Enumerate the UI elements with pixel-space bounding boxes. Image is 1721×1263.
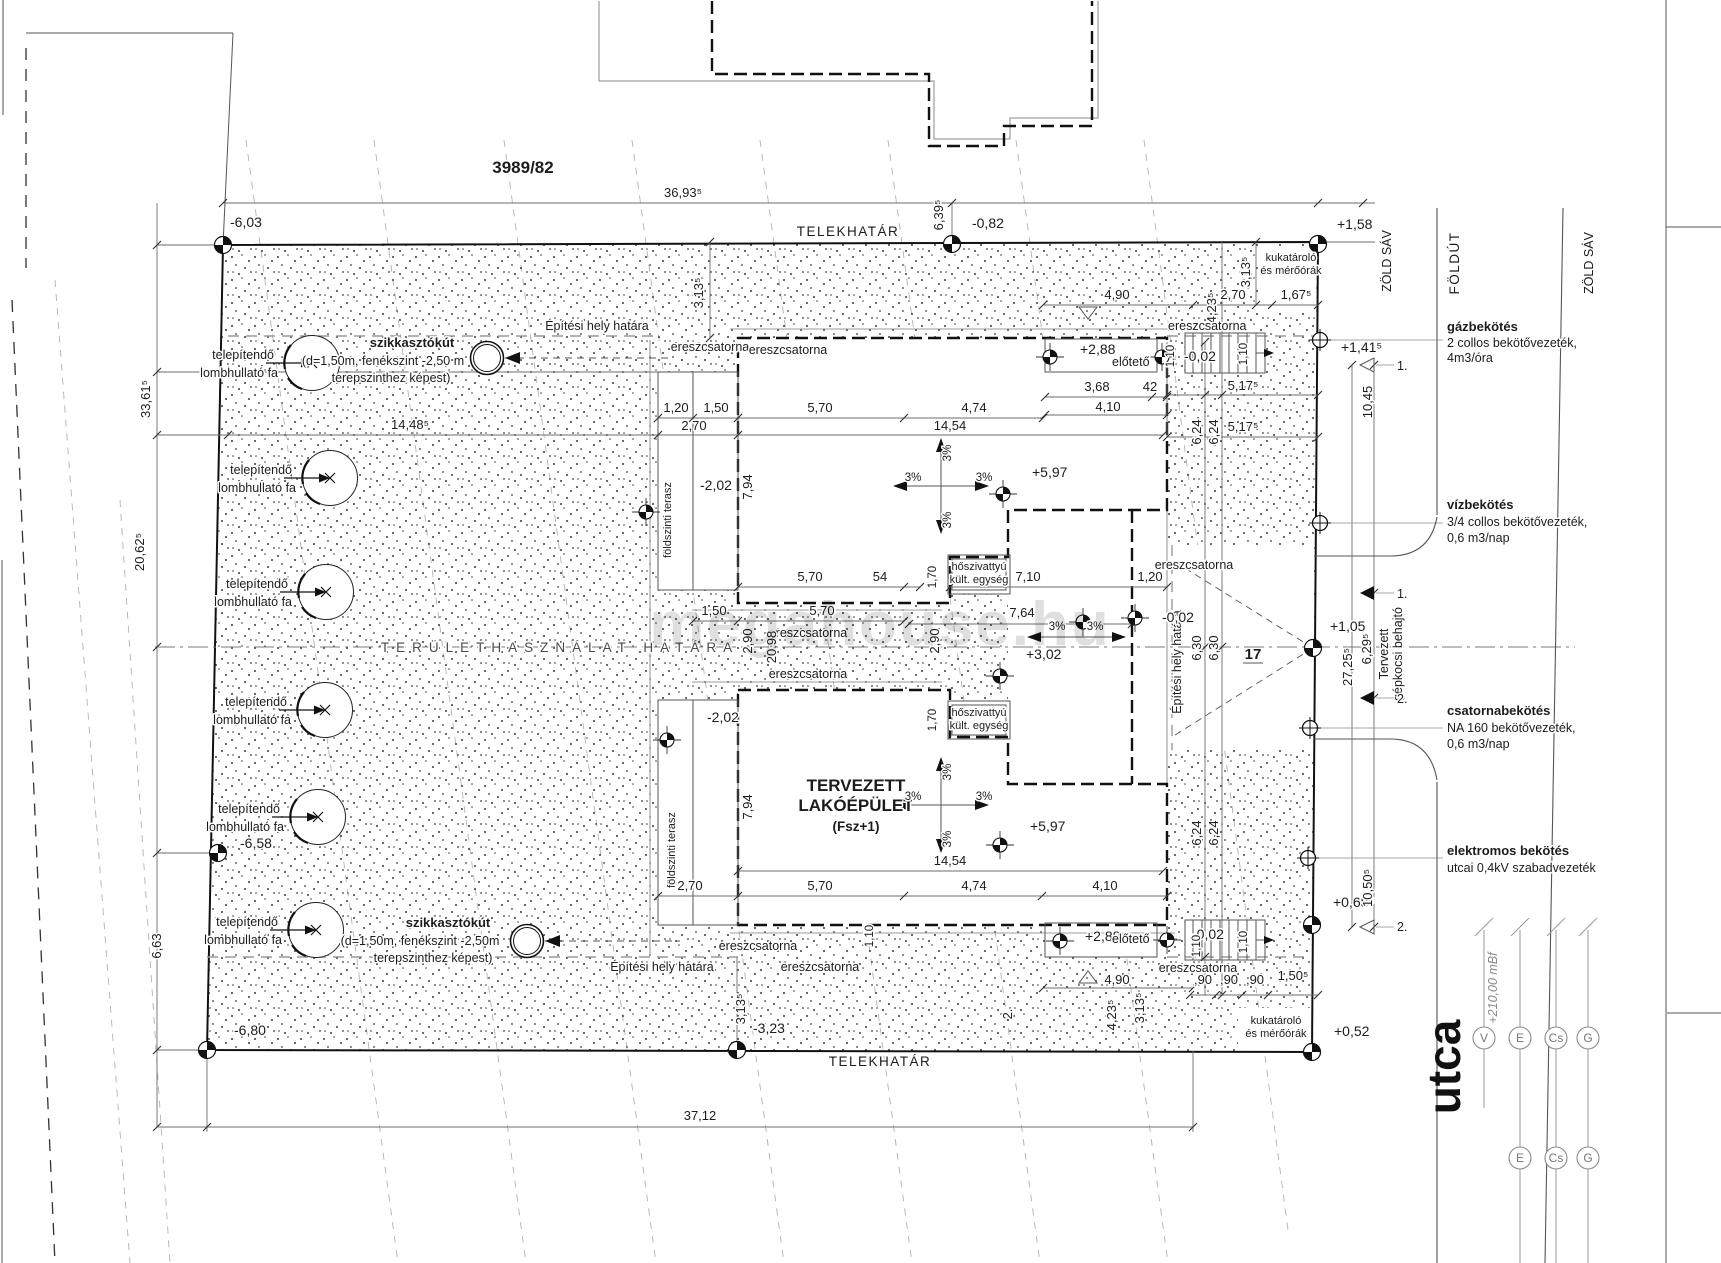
level-minus-680: -6,80 xyxy=(234,1022,266,1038)
szikkaszto-l-title: szikkasztókút xyxy=(406,915,491,930)
utility-marker-G: G xyxy=(1577,1147,1599,1169)
slope-u-left: 3% xyxy=(905,472,922,484)
dim-270-bot: 2,70 xyxy=(677,878,702,893)
dim-120-top: 1,20 xyxy=(663,400,688,415)
approach-1-top: 1. xyxy=(1397,359,1407,373)
dim-410-bot: 4,10 xyxy=(1092,878,1117,893)
soakaway-well-1 xyxy=(471,342,504,375)
dim-270-top2: 2,70 xyxy=(681,418,706,433)
dim-2-rot: 2. xyxy=(1000,1009,1015,1020)
eresz-bot-1: ereszcsatorna xyxy=(719,939,798,953)
utility-leaders xyxy=(1315,340,1443,858)
dim-570-bot: 5,70 xyxy=(807,878,832,893)
hoszivattyu-u-1: hőszivattyú xyxy=(951,561,1006,573)
level-minus-658: -6,58 xyxy=(240,835,272,851)
dim-794-l: 7,94 xyxy=(740,794,755,819)
soakaway-well-2 xyxy=(511,925,544,958)
dim-6295: 6,29⁵ xyxy=(1359,634,1374,665)
dim-90-c: ,90 xyxy=(1246,972,1264,987)
level-minus-002-mid: -0,02 xyxy=(1162,609,1194,625)
plot-number: 3989/82 xyxy=(492,158,553,177)
hoszivattyu-u-2: kült. egység xyxy=(950,574,1009,586)
dim-total-width-top: 36,93⁵ xyxy=(664,185,702,200)
dim-110-tb: 1,10 xyxy=(1238,343,1250,365)
boundary-point xyxy=(1304,1044,1321,1061)
level-plus-105: +1,05 xyxy=(1330,618,1366,634)
dim-150-top: 1,50 xyxy=(703,400,728,415)
terasz-label-l: földszinti terasz xyxy=(666,812,678,888)
utility-marker-G: G xyxy=(1577,1027,1599,1049)
dim-624-ub: 6,24 xyxy=(1206,419,1221,444)
vizbekotes-title: vízbekötés xyxy=(1447,497,1513,512)
elektromos-line2: utcai 0,4kV szabadvezeték xyxy=(1447,861,1596,875)
slope-l-up: 3% xyxy=(942,764,954,781)
dim-1454-top: 14,54 xyxy=(934,418,967,433)
dim-710: 7,10 xyxy=(1015,569,1040,584)
dim-474-top: 4,74 xyxy=(961,400,986,415)
dim-270-topright: 2,70 xyxy=(1220,287,1245,302)
level-plus-597-l: +5,97 xyxy=(1030,818,1066,834)
dim-1454-bot: 14,54 xyxy=(934,853,967,868)
epitesi-hely-top: Építési hely határa xyxy=(545,318,649,333)
epitesi-hely-right: Építési hely határa xyxy=(1169,610,1184,714)
dim-490-top: 4,90 xyxy=(1104,287,1129,302)
dim-5175-a: 5,17⁵ xyxy=(1228,378,1259,393)
utility-marker-Cs: Cs xyxy=(1545,1147,1567,1169)
kukatarolo-top-2: és mérőórák xyxy=(1260,265,1322,277)
szikkaszto-l-line2: (d=1,50m, fenékszint -2,50m xyxy=(341,934,500,948)
dim-630-b: 6,30 xyxy=(1206,635,1221,660)
szikkaszto-l-line3: terepszinthez képest) xyxy=(374,951,493,965)
tree-label-line2: lombhullató fa xyxy=(213,713,291,727)
dim-170-l: 1,70 xyxy=(927,709,939,731)
level-minus-323: -3,23 xyxy=(753,1020,785,1036)
watermark: megahouse.hu xyxy=(649,590,1111,659)
dim-110-ta: 1,10 xyxy=(1165,345,1177,367)
zold-sav-left: ZÖLD SÁV xyxy=(1379,229,1394,291)
foldut: FÖLDÚT xyxy=(1447,232,1462,295)
level-minus-002-top: -0,02 xyxy=(1184,348,1216,364)
dim-5175-b: 5,17⁵ xyxy=(1228,419,1259,434)
approach-2-mid: 2. xyxy=(1397,692,1407,706)
epitesi-hely-bottom: Építési hely határa xyxy=(610,959,714,974)
eresz-mid-2: ereszcsatorna xyxy=(769,667,848,681)
utility-marker-label: V xyxy=(1480,1031,1488,1045)
level-plus-1415: +1,41⁵ xyxy=(1341,339,1382,355)
tree-label-line2: lombhullató fa xyxy=(218,481,296,495)
house-number-17: 17 xyxy=(1245,646,1262,663)
dim-630-a: 6,30 xyxy=(1189,635,1204,660)
dim-1675: 1,67⁵ xyxy=(1281,287,1312,302)
terasz-label-u: földszinti terasz xyxy=(662,482,674,558)
level-plus-597-u: +5,97 xyxy=(1032,464,1068,480)
road-lines xyxy=(1314,0,1721,1263)
dim-4235-botright: 4,23⁵ xyxy=(1104,1000,1119,1031)
tree-label-line1: telepítendő xyxy=(230,463,292,477)
label-telekhatar-bottom: TELEKHATÁR xyxy=(829,1054,932,1069)
tree-label-line1: telepítendő xyxy=(216,915,278,929)
dim-20625: 20,62⁵ xyxy=(132,533,147,571)
dim-90-a: ,90 xyxy=(1194,972,1212,987)
utility-marker-label: E xyxy=(1516,1151,1524,1165)
tree-label-line2: lombhullató fa xyxy=(214,595,292,609)
level-plus-052: +0,52 xyxy=(1334,1023,1370,1039)
dim-110-ba: 1,10 xyxy=(1191,935,1203,957)
utility-marker-E: E xyxy=(1509,1147,1531,1169)
dim-624-la: 6,24 xyxy=(1189,820,1204,845)
dim-10505: 10,50⁵ xyxy=(1360,869,1375,907)
tree-label-line2: lombhullató fa xyxy=(204,933,282,947)
slope-u-up: 3% xyxy=(942,445,954,462)
gazbekotes-line2: 2 collos bekötővezeték, xyxy=(1447,336,1577,350)
tree-label-line2: lombhullató fa xyxy=(200,366,278,380)
boundary-point xyxy=(729,1042,746,1059)
slope-u-down: 3% xyxy=(942,512,954,529)
dim-42: 42 xyxy=(1143,379,1157,394)
dim-3135-botright: 3,13⁵ xyxy=(1132,993,1147,1024)
datum-level: +210,00 mBf xyxy=(1486,951,1500,1024)
level-minus-202-l: -2,02 xyxy=(707,709,739,725)
csatorna-title: csatornabekötés xyxy=(1447,703,1550,718)
site-plan-drawing: telepítendőlombhullató fatelepítendőlomb… xyxy=(0,0,1721,1263)
slope-u-right: 3% xyxy=(976,472,993,484)
slope-l-down: 3% xyxy=(942,831,954,848)
building-title-2: LAKÓÉPÜLET xyxy=(798,796,914,815)
dim-410-top: 4,10 xyxy=(1095,399,1120,414)
level-minus-082: -0,82 xyxy=(972,215,1004,231)
dim-663: 6,63 xyxy=(149,933,164,958)
gazbekotes-line3: 4m3/óra xyxy=(1447,351,1493,365)
utility-marker-label: E xyxy=(1516,1031,1524,1045)
level-plus-288-top: +2,88 xyxy=(1080,341,1116,357)
dim-110-jog: 1,10 xyxy=(864,925,876,947)
gazbekotes-title: gázbekötés xyxy=(1447,319,1518,334)
boundary-point xyxy=(199,1042,216,1059)
left-boundary-lines xyxy=(2,0,233,1263)
dim-3135-botleft: 3,13⁵ xyxy=(733,994,748,1025)
boundary-point xyxy=(215,237,232,254)
eresz-top-2: ereszcsatorna xyxy=(749,343,828,357)
dim-794-u: 7,94 xyxy=(740,474,755,499)
vizbekotes-line2: 3/4 collos bekötővezeték, xyxy=(1447,515,1587,529)
utility-marker-label: G xyxy=(1583,1151,1592,1165)
vizbekotes-line3: 0,6 m3/nap xyxy=(1447,531,1510,545)
dim-1505: 1,50⁵ xyxy=(1278,968,1309,983)
utility-marker-label: Cs xyxy=(1549,1031,1564,1045)
kukatarolo-top-1: kukatároló xyxy=(1266,252,1317,264)
dim-368: 3,68 xyxy=(1084,379,1109,394)
utility-marker-label: Cs xyxy=(1549,1151,1564,1165)
boundary-point xyxy=(1310,236,1327,253)
dim-170-u: 1,70 xyxy=(927,566,939,588)
szikkaszto-u-line2: (d=1,50m, fenékszint -2,50 m xyxy=(302,354,464,368)
utility-marker-Cs: Cs xyxy=(1545,1027,1567,1049)
tree-label-line1: telepítendő xyxy=(225,695,287,709)
driveway-label-1: Tervezett xyxy=(1377,628,1391,679)
tree-label-line1: telepítendő xyxy=(226,577,288,591)
boundary-point xyxy=(210,845,227,862)
tree-label-line1: telepítendő xyxy=(218,802,280,816)
eresz-bot-2: ereszcsatorna xyxy=(781,960,860,974)
eresz-top-1: ereszcsatorna xyxy=(671,340,750,354)
eresz-topright: ereszcsatorna xyxy=(1168,319,1247,333)
driveway-label-2: gépkocsi behajtó xyxy=(1391,607,1405,701)
dim-120-mid: 1,20 xyxy=(1137,569,1162,584)
kukatarolo-bot-2: és mérőórák xyxy=(1245,1028,1307,1040)
dim-14485: 14,48⁵ xyxy=(391,417,429,432)
kukatarolo-bot-1: kukatároló xyxy=(1251,1015,1302,1027)
dim-3712: 37,12 xyxy=(684,1108,717,1123)
building-title-3: (Fsz+1) xyxy=(833,819,880,834)
dim-6395: 6,39⁵ xyxy=(931,200,946,231)
dim-474-bot: 4,74 xyxy=(961,878,986,893)
dim-570-m1: 5,70 xyxy=(797,569,822,584)
eloteto-bottom: előtető xyxy=(1112,932,1150,946)
dim-33615: 33,61⁵ xyxy=(138,380,153,418)
building-title-1: TERVEZETT xyxy=(807,776,906,795)
hoszivattyu-l-1: hőszivattyú xyxy=(951,707,1006,719)
approach-2-bot: 2. xyxy=(1397,920,1407,934)
dim-1045: 10,45 xyxy=(1360,386,1375,419)
level-minus-603: -6,03 xyxy=(230,214,262,230)
boundary-point xyxy=(1305,640,1322,657)
tree-label-line2: lombhullató fa xyxy=(206,820,284,834)
dim-570-top: 5,70 xyxy=(807,400,832,415)
szikkaszto-u-title: szikkasztókút xyxy=(370,335,455,350)
utility-marker-V: V xyxy=(1473,1027,1495,1049)
dim-90-b: ,90 xyxy=(1220,972,1238,987)
elektromos-title: elektromos bekötés xyxy=(1447,843,1569,858)
eresz-right: ereszcsatorna xyxy=(1155,558,1234,572)
csatorna-line3: 0,6 m3/nap xyxy=(1447,737,1510,751)
dim-110-bb: 1,10 xyxy=(1238,931,1250,953)
zold-sav-right: ZÖLD SÁV xyxy=(1581,231,1596,293)
dim-27255: 27,25⁵ xyxy=(1340,648,1355,686)
tree-label-line1: telepítendő xyxy=(212,348,274,362)
dim-3135-topleft: 3,13⁵ xyxy=(691,278,706,309)
dim-624-lb: 6,24 xyxy=(1206,820,1221,845)
utility-marker-E: E xyxy=(1509,1027,1531,1049)
dim-490-bot: 4,90 xyxy=(1104,972,1129,987)
dim-54: 54 xyxy=(873,569,887,584)
street-name: utca xyxy=(1418,1019,1470,1114)
level-plus-158: +1,58 xyxy=(1337,216,1373,232)
boundary-point xyxy=(944,236,961,253)
hoszivattyu-l-2: kült. egység xyxy=(950,720,1009,732)
neighbour-building xyxy=(599,1,1098,146)
eloteto-top: előtető xyxy=(1112,355,1150,369)
site-plan-sheet: telepítendőlombhullató fatelepítendőlomb… xyxy=(0,0,1721,1263)
csatorna-line2: NA 160 bekötővezeték, xyxy=(1447,721,1576,735)
utility-marker-label: G xyxy=(1583,1031,1592,1045)
dim-3135-topright: 3,13⁵ xyxy=(1238,257,1253,288)
slope-l-left: 3% xyxy=(905,791,922,803)
dim-624-ua: 6,24 xyxy=(1189,419,1204,444)
szikkaszto-u-line3: terepszinthez képest) xyxy=(332,371,451,385)
level-minus-202-u: -2,02 xyxy=(700,477,732,493)
slope-l-right: 3% xyxy=(976,791,993,803)
boundary-point xyxy=(1304,917,1321,934)
approach-1-mid: 1. xyxy=(1397,587,1407,601)
label-telekhatar-top: TELEKHATÁR xyxy=(797,224,900,239)
